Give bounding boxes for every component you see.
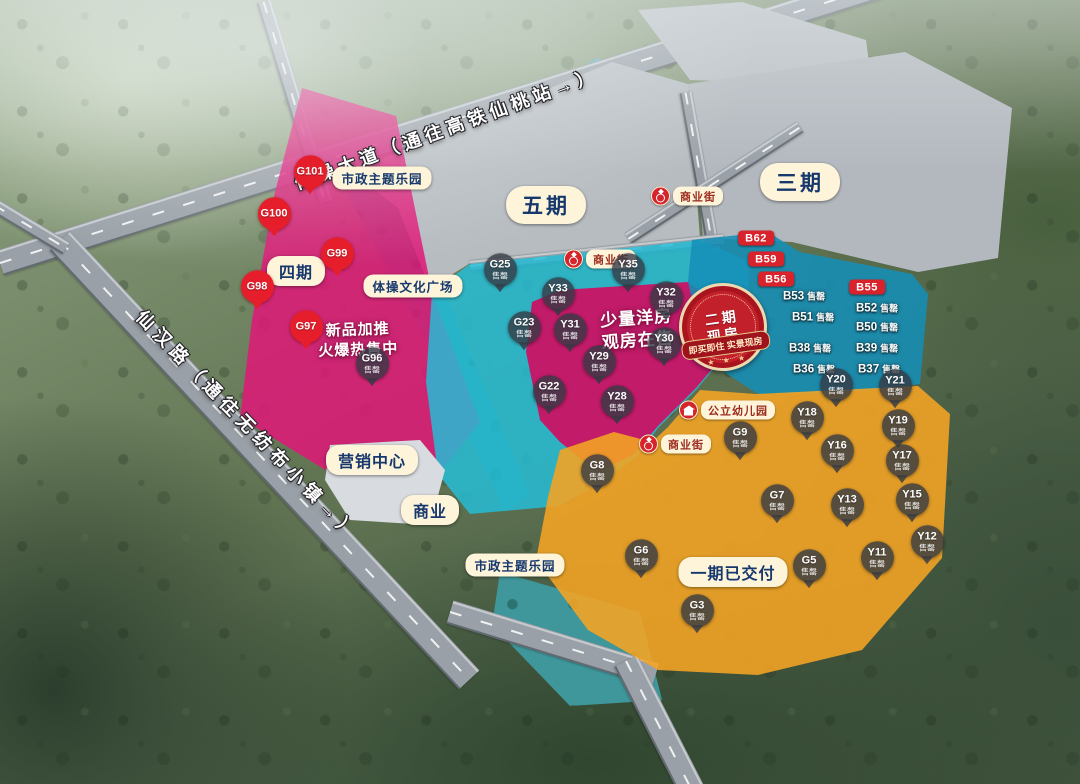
marker-G97: G97 xyxy=(287,310,325,355)
marker-Y13: Y13售罄 xyxy=(828,488,866,533)
marker-id: G7 xyxy=(770,490,785,502)
marker-status: 售罄 xyxy=(541,393,557,402)
marker-tail xyxy=(304,186,316,200)
marker-id: Y11 xyxy=(868,547,887,559)
marker-B59: B59 xyxy=(748,252,784,267)
marker-bubble: G7售罄 xyxy=(761,484,794,517)
marker-status: 售罄 xyxy=(656,345,672,354)
marker-id: Y16 xyxy=(827,440,847,452)
marker-status: 售罄 xyxy=(609,403,625,412)
marker-id: G8 xyxy=(590,460,605,472)
shopping-street-icon xyxy=(651,187,670,206)
kindergarten-icon xyxy=(679,401,698,420)
marker-B55: B55 xyxy=(849,280,885,295)
marker-tail xyxy=(300,341,312,355)
marker-B51: B51售罄 xyxy=(792,311,834,324)
marker-bubble: G97 xyxy=(290,310,323,343)
poi-label-text: 公立幼儿园 xyxy=(701,401,775,420)
marker-tail xyxy=(871,572,883,586)
marker-status: 售罄 xyxy=(689,612,705,621)
marker-bubble: Y18售罄 xyxy=(791,401,824,434)
poi-label-text: 商业街 xyxy=(673,187,723,206)
marker-tail xyxy=(734,452,746,466)
marker-id: Y28 xyxy=(607,391,627,403)
marker-tail xyxy=(611,416,623,430)
marker-id: G6 xyxy=(634,545,649,557)
zone-label: 三期 xyxy=(760,163,840,201)
marker-G7: G7售罄 xyxy=(758,484,796,529)
marker-tail xyxy=(518,342,530,356)
marker-tail xyxy=(841,519,853,533)
marker-id: G101 xyxy=(297,166,324,178)
marker-bubble: G98 xyxy=(241,270,274,303)
marker-bubble: G100 xyxy=(258,197,291,230)
ring-glyph xyxy=(656,193,665,202)
marker-Y35: Y35售罄 xyxy=(609,253,647,298)
marker-tail xyxy=(635,570,647,584)
marker-id: G99 xyxy=(327,248,348,260)
marker-status: 售罄 xyxy=(591,363,607,372)
marker-tail xyxy=(268,228,280,242)
marker-id: G100 xyxy=(261,208,288,220)
marker-id: G96 xyxy=(362,353,383,365)
marker-status: 售罄 xyxy=(887,387,903,396)
marker-bubble: G101 xyxy=(294,155,327,188)
marker-status: 售罄 xyxy=(364,365,380,374)
marker-tail xyxy=(801,432,813,446)
marker-bubble: G5售罄 xyxy=(793,549,826,582)
poi-label-text: 商业街 xyxy=(661,435,711,454)
marker-G98: G98 xyxy=(238,270,276,315)
marker-Y30: Y30售罄 xyxy=(645,327,683,372)
school-glyph xyxy=(684,409,693,415)
marker-G23: G23售罄 xyxy=(505,311,543,356)
ring-glyph xyxy=(569,256,578,265)
marker-bubble: Y29售罄 xyxy=(583,345,616,378)
marker-bubble: G8售罄 xyxy=(581,454,614,487)
marker-status: 售罄 xyxy=(890,427,906,436)
marker-status: 售罄 xyxy=(589,472,605,481)
marker-tail xyxy=(691,625,703,639)
marker-status: 售罄 xyxy=(801,567,817,576)
zone-label: 体操文化广场 xyxy=(363,275,462,298)
marker-tail xyxy=(494,284,506,298)
marker-B39: B39售罄 xyxy=(856,342,898,355)
marker-status: 售罄 xyxy=(516,329,532,338)
zone-label: 市政主题乐园 xyxy=(332,167,431,190)
marker-tail xyxy=(771,515,783,529)
marker-tail xyxy=(803,580,815,594)
marker-tail xyxy=(660,312,672,326)
marker-bubble: Y30售罄 xyxy=(648,327,681,360)
marker-tail xyxy=(251,301,263,315)
marker-bubble: Y31售罄 xyxy=(554,313,587,346)
marker-bubble: G96售罄 xyxy=(356,347,389,380)
marker-Y11: Y11售罄 xyxy=(858,541,896,586)
phase2-ready-homes-badge: 二期 现房 即买即住 实景现房 ★ ★ ★ xyxy=(673,277,772,376)
marker-id: Y19 xyxy=(888,415,908,427)
marker-G9: G9售罄 xyxy=(721,421,759,466)
ring-glyph xyxy=(644,441,653,450)
marker-B38: B38售罄 xyxy=(789,342,831,355)
marker-id: Y21 xyxy=(885,375,905,387)
marker-Y15: Y15售罄 xyxy=(893,483,931,528)
marker-tail xyxy=(366,378,378,392)
poi-label: 商业街 xyxy=(639,435,711,454)
marker-bubble: Y17售罄 xyxy=(886,444,919,477)
marker-id: Y12 xyxy=(917,531,937,543)
marker-tail xyxy=(622,284,634,298)
marker-B56: B56 xyxy=(758,272,794,287)
marker-status: 售罄 xyxy=(894,462,910,471)
marker-bubble: Y11售罄 xyxy=(861,541,894,574)
marker-tail xyxy=(564,344,576,358)
marker-G3: G3售罄 xyxy=(678,594,716,639)
marker-id: G23 xyxy=(514,317,535,329)
marker-bubble: G22售罄 xyxy=(533,375,566,408)
marker-status: 售罄 xyxy=(869,559,885,568)
marker-id: Y15 xyxy=(902,489,922,501)
marker-status: 售罄 xyxy=(732,439,748,448)
zone-label: 商业 xyxy=(401,495,459,525)
marker-status: 售罄 xyxy=(919,543,935,552)
marker-Y21: Y21售罄 xyxy=(876,369,914,414)
marker-bubble: G25售罄 xyxy=(484,253,517,286)
marker-id: G9 xyxy=(733,427,748,439)
marker-status: 售罄 xyxy=(550,295,566,304)
marker-B53: B53售罄 xyxy=(783,290,825,303)
marker-tail xyxy=(543,406,555,420)
marker-bubble: G9售罄 xyxy=(724,421,757,454)
marker-bubble: G3售罄 xyxy=(681,594,714,627)
marker-status: 售罄 xyxy=(828,386,844,395)
marker-bubble: Y28售罄 xyxy=(601,385,634,418)
marker-bubble: Y16售罄 xyxy=(821,434,854,467)
marker-id: G5 xyxy=(802,555,817,567)
badge-line1: 二期 xyxy=(704,308,740,329)
marker-id: G22 xyxy=(539,381,560,393)
marker-bubble: G6售罄 xyxy=(625,539,658,572)
zone-label: 一期已交付 xyxy=(678,557,787,587)
marker-tail xyxy=(591,485,603,499)
poi-label: 商业街 xyxy=(651,187,723,206)
marker-status: 售罄 xyxy=(633,557,649,566)
marker-B50: B50售罄 xyxy=(856,321,898,334)
poi-label: 公立幼儿园 xyxy=(679,401,775,420)
marker-Y29: Y29售罄 xyxy=(580,345,618,390)
marker-status: 售罄 xyxy=(839,506,855,515)
marker-id: Y33 xyxy=(548,283,568,295)
marker-id: Y13 xyxy=(837,494,857,506)
zone-label: 五期 xyxy=(506,186,586,224)
marker-tail xyxy=(921,556,933,570)
marker-tail xyxy=(831,465,843,479)
marker-id: Y35 xyxy=(618,259,638,271)
marker-bubble: Y33售罄 xyxy=(542,277,575,310)
marker-id: G25 xyxy=(490,259,511,271)
marker-B62: B62 xyxy=(738,231,774,246)
marker-bubble: Y21售罄 xyxy=(879,369,912,402)
marker-tail xyxy=(830,399,842,413)
marker-bubble: Y15售罄 xyxy=(896,483,929,516)
marker-tail xyxy=(331,268,343,282)
marker-status: 售罄 xyxy=(829,452,845,461)
shopping-street-icon xyxy=(564,250,583,269)
marker-G25: G25售罄 xyxy=(481,253,519,298)
marker-status: 售罄 xyxy=(562,331,578,340)
marker-G6: G6售罄 xyxy=(622,539,660,584)
marker-Y28: Y28售罄 xyxy=(598,385,636,430)
marker-bubble: Y19售罄 xyxy=(882,409,915,442)
shopping-street-icon xyxy=(639,435,658,454)
marker-G100: G100 xyxy=(255,197,293,242)
zone-label: 市政主题乐园 xyxy=(465,554,564,577)
marker-G101: G101 xyxy=(291,155,329,200)
marker-bubble: Y20售罄 xyxy=(820,368,853,401)
marker-status: 售罄 xyxy=(658,299,674,308)
marker-tail xyxy=(658,358,670,372)
marker-id: Y17 xyxy=(892,450,912,462)
marker-id: Y31 xyxy=(560,319,580,331)
marker-G99: G99 xyxy=(318,237,356,282)
marker-id: Y29 xyxy=(589,351,609,363)
marker-G22: G22售罄 xyxy=(530,375,568,420)
marker-B52: B52售罄 xyxy=(856,302,898,315)
marker-status: 售罄 xyxy=(769,502,785,511)
marker-bubble: Y12售罄 xyxy=(911,525,944,558)
marker-bubble: G23售罄 xyxy=(508,311,541,344)
zone-label: 营销中心 xyxy=(326,445,418,475)
marker-status: 售罄 xyxy=(799,419,815,428)
marker-id: Y30 xyxy=(654,333,674,345)
marker-bubble: Y35售罄 xyxy=(612,253,645,286)
marker-id: Y20 xyxy=(826,374,846,386)
marker-id: G97 xyxy=(296,321,317,333)
marker-Y16: Y16售罄 xyxy=(818,434,856,479)
marker-bubble: G99 xyxy=(321,237,354,270)
marker-id: G98 xyxy=(247,281,268,293)
marker-bubble: Y13售罄 xyxy=(831,488,864,521)
masterplan-scene: 体操大道（通往高铁仙桃站→） 仙汉路（通往无纺布小镇→） 市政主题乐园五期三期四… xyxy=(0,0,1080,784)
marker-G5: G5售罄 xyxy=(790,549,828,594)
marker-G96: G96售罄 xyxy=(353,347,391,392)
marker-id: G3 xyxy=(690,600,705,612)
marker-G8: G8售罄 xyxy=(578,454,616,499)
marker-status: 售罄 xyxy=(620,271,636,280)
marker-status: 售罄 xyxy=(904,501,920,510)
marker-status: 售罄 xyxy=(492,271,508,280)
marker-Y12: Y12售罄 xyxy=(908,525,946,570)
marker-id: Y18 xyxy=(797,407,817,419)
markers-layer: G101G100G99G98G97G96售罄G25售罄Y35售罄Y33售罄Y32… xyxy=(0,0,1080,784)
